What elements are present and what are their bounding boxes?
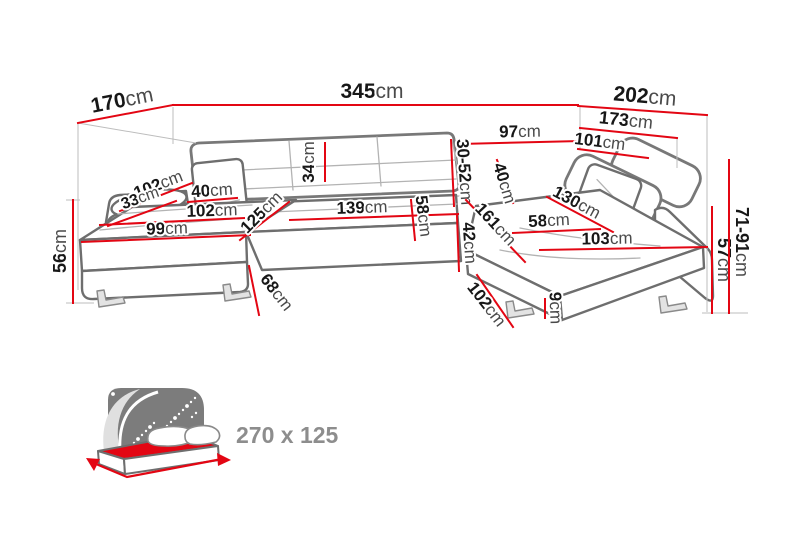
star-dot bbox=[136, 437, 140, 441]
sleeping-area-icon: 270 x 125 bbox=[86, 388, 339, 477]
dimension-front-edge-height-left: 68cm bbox=[249, 266, 297, 315]
star-dot bbox=[182, 409, 184, 411]
dimension-label-left-height: 56cm bbox=[50, 229, 70, 273]
dimension-pillow-width-left: 40cm bbox=[188, 179, 237, 202]
dimension-label-middle-seat-length: 139cm bbox=[336, 197, 388, 218]
dimension-label-right-seat-width: 58cm bbox=[528, 209, 571, 230]
sofa-dimension-diagram: 170cm345cm202cm173cm97cm101cm34cm30-52cm… bbox=[0, 0, 800, 533]
dimension-line-front-edge-height-left bbox=[249, 266, 259, 315]
dimension-label-seat-height-middle: 42cm bbox=[459, 222, 481, 265]
dimension-pillow-width-right: 40cm bbox=[490, 160, 520, 206]
dimension-label-backrest-height: 34cm bbox=[299, 141, 318, 183]
dimension-left-height: 56cm bbox=[50, 200, 73, 303]
dimension-label-left-depth: 170cm bbox=[89, 83, 155, 118]
dimension-seat-height-middle: 42cm bbox=[457, 216, 481, 271]
dimension-label-right-depth: 202cm bbox=[613, 82, 678, 110]
dimension-label-left-seat-length: 102cm bbox=[186, 200, 238, 221]
dimension-label-headrest-height-range: 71-91cm bbox=[732, 207, 752, 277]
star-dot bbox=[141, 434, 143, 436]
dimension-label-back-width-right: 97cm bbox=[499, 121, 541, 141]
star-dot bbox=[178, 413, 180, 415]
dimension-label-right-inner-depth: 173cm bbox=[598, 107, 654, 133]
star-dot bbox=[185, 404, 189, 408]
star-dot bbox=[194, 397, 196, 399]
dimension-label-pillow-width-left: 40cm bbox=[191, 179, 234, 201]
star-dot bbox=[173, 416, 177, 420]
dimension-middle-seat-depth: 58cm bbox=[411, 194, 436, 240]
star-dot bbox=[111, 392, 115, 396]
dimension-back-width-right: 97cm bbox=[460, 121, 580, 144]
dimension-label-pillow-width-right: 40cm bbox=[490, 160, 520, 205]
star-dot bbox=[195, 412, 197, 414]
star-dot bbox=[145, 430, 147, 432]
bed-arrow-head-right bbox=[217, 453, 231, 466]
dimension-line-back-width-right bbox=[460, 141, 580, 144]
diagram-canvas: 170cm345cm202cm173cm97cm101cm34cm30-52cm… bbox=[0, 0, 800, 533]
dimension-right-depth: 202cm bbox=[578, 82, 707, 115]
sofa-foot bbox=[659, 296, 687, 313]
dimension-label-foot-height: 9cm bbox=[546, 292, 566, 325]
bed-pillow bbox=[185, 426, 220, 445]
dimension-label-right-front-length: 103cm bbox=[581, 228, 632, 248]
star-dot bbox=[170, 421, 172, 423]
star-dot bbox=[153, 422, 155, 424]
dimension-armrest-height-right: 57cm bbox=[712, 207, 734, 313]
dimension-label-armrest-height-right: 57cm bbox=[714, 238, 734, 282]
sleeping-area-size: 270 x 125 bbox=[236, 422, 339, 448]
star-dot bbox=[191, 416, 193, 418]
dimension-label-left-seat-width: 99cm bbox=[146, 218, 188, 238]
dimension-foot-height: 9cm bbox=[545, 292, 566, 325]
star-dot bbox=[190, 401, 192, 403]
dimension-headrest-height-range: 71-91cm bbox=[729, 160, 752, 313]
dimension-total-width: 345cm bbox=[173, 80, 578, 106]
dimension-label-front-edge-height-left: 68cm bbox=[257, 270, 298, 314]
star-dot bbox=[148, 425, 152, 429]
dimension-label-total-width: 345cm bbox=[340, 80, 403, 103]
dimension-left-depth: 170cm bbox=[78, 83, 173, 123]
